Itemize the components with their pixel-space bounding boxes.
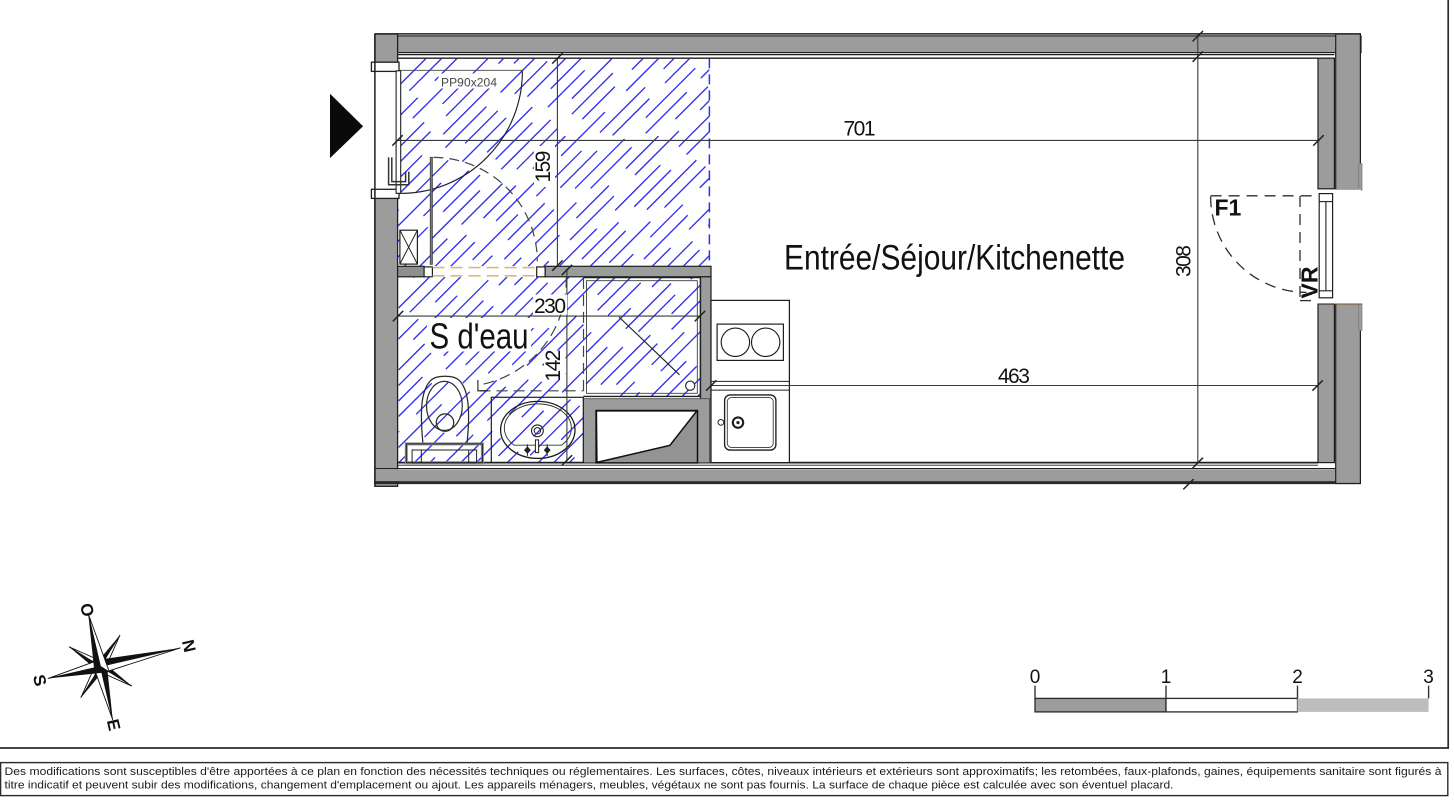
svg-text:1: 1 bbox=[1161, 667, 1172, 688]
svg-text:701: 701 bbox=[844, 117, 876, 140]
svg-text:230: 230 bbox=[534, 295, 566, 318]
svg-text:142: 142 bbox=[542, 350, 565, 382]
svg-text:VR: VR bbox=[1296, 266, 1322, 298]
svg-text:Entrée/Séjour/Kitchenette: Entrée/Séjour/Kitchenette bbox=[784, 238, 1125, 278]
svg-text:S d'eau: S d'eau bbox=[430, 316, 529, 357]
svg-text:titre indicatif et peuvent sub: titre indicatif et peuvent subir des mod… bbox=[5, 780, 1174, 792]
svg-text:3: 3 bbox=[1423, 667, 1434, 688]
svg-text:2: 2 bbox=[1292, 667, 1303, 688]
svg-text:308: 308 bbox=[1173, 245, 1196, 277]
svg-text:159: 159 bbox=[532, 151, 555, 183]
svg-text:Des modifications sont suscept: Des modifications sont susceptibles d'êt… bbox=[5, 766, 1442, 778]
svg-text:PP90x204: PP90x204 bbox=[441, 76, 497, 90]
svg-text:0: 0 bbox=[1030, 667, 1041, 688]
svg-text:F1: F1 bbox=[1215, 195, 1242, 221]
svg-text:463: 463 bbox=[998, 365, 1030, 388]
